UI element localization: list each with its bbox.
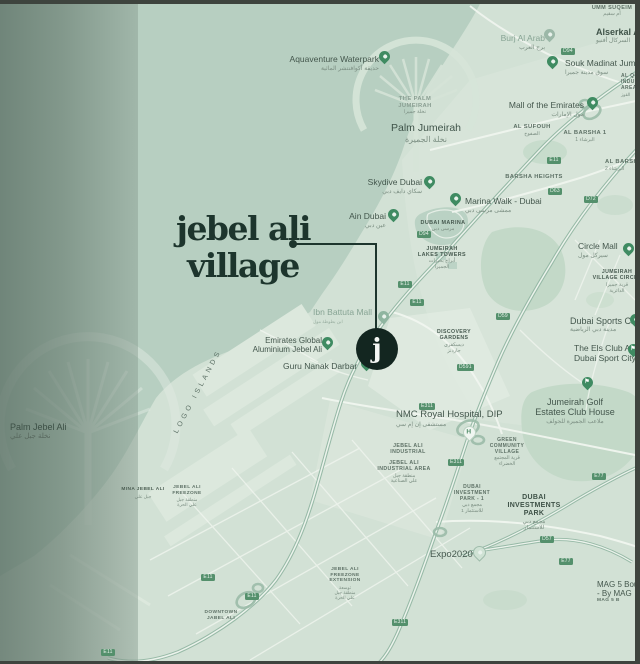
top-edge (0, 0, 640, 4)
road-badge: D94 (417, 231, 431, 238)
road-badge: E11 (245, 593, 259, 600)
label-dubai-investment-park-1: DUBAI INVESTMENT PARK - 1مجمع دبي للاستث… (448, 485, 496, 514)
label-jumeirah-lakes-towers: JUMEIRAH LAKES TOWERSأبراج بحيرات الجمير… (410, 246, 474, 271)
map-page: Aquaventure Waterparkحديقة أكوافنتشر الم… (0, 0, 640, 664)
label-guru-nanak-darbar: Guru Nanak Darbar (283, 362, 365, 372)
label-al-barsha-1: AL BARSHA 1البرشاء 1 (558, 130, 612, 143)
road-badge: E311 (448, 459, 464, 466)
project-title-line2: village (153, 247, 333, 284)
label-palm-jumeirah: Palm Jumeirahنخلة الجميرة (378, 122, 474, 144)
label-jebel-ali-industrial: JEBEL ALI INDUSTRIAL (378, 444, 438, 456)
road-badge: D72 (584, 196, 598, 203)
leader-line-vertical (375, 244, 377, 330)
road-badge: E11 (547, 157, 561, 164)
label-mall-of-the-emirates: Mall of the Emiratesمول الإمارات (508, 101, 584, 119)
label-mina-jebel-ali: MINA JEBEL ALIجبل علي (116, 487, 170, 499)
label-mag5-boulevard: MAG 5 Boulevard - By MAGMAG 5 B (597, 580, 640, 604)
label-jebel-ali-industrial-area: JEBEL ALI INDUSTRIAL AREAمنطقة جبل علي ا… (366, 461, 442, 485)
road-badge: E77 (592, 473, 606, 480)
label-marina-walk: Marina Walk - Dubaiممشى مرسى دبي (465, 197, 563, 215)
right-edge (635, 0, 640, 664)
label-jumeirah-golf-estates: Jumeirah Golf Estates Club Houseملاعب ال… (520, 397, 630, 426)
road-badge: D59 (496, 313, 510, 320)
road-badge: E77 (559, 558, 573, 565)
label-emirates-global-aluminium: Emirates Global Aluminium Jebel Ali (240, 336, 322, 354)
project-title: jebel ali village (153, 210, 333, 284)
label-ibn-battuta-mall: Ibn Battuta Mallابن بطوطة مول (313, 308, 383, 324)
label-skydive-dubai: Skydive Dubaiسكاي دايف دبي (358, 178, 422, 196)
road-badge: D57 (540, 536, 554, 543)
road-badge: D94 (561, 48, 575, 55)
label-al-sufouh: AL SUFOUHالصفوح (506, 124, 558, 137)
road-badge: D63 (548, 188, 562, 195)
road-badge: E311 (419, 403, 435, 410)
page-fold-band (0, 0, 138, 664)
label-jebel-ali-freezone: JEBEL ALI FREEZONEمنطقة جبل علي الحرة (164, 485, 210, 507)
road-badge: E11 (201, 574, 215, 581)
label-nmc-royal-hospital: NMC Royal Hospital, DIPمستشفى إن إم سي (396, 410, 506, 429)
jebel-ali-village-marker[interactable]: j (356, 328, 398, 370)
road-badge: E11 (398, 281, 412, 288)
label-jumeirah-village-circle: JUMEIRAH VILLAGE CIRCLEقرية جميرا الدائر… (590, 270, 640, 294)
label-ain-dubai: Ain Dubaiعين دبي (334, 212, 386, 230)
road-badge: E11 (101, 649, 115, 656)
road-badge: E11 (410, 299, 424, 306)
label-green-community-village: GREEN COMMUNITY VILLAGEقرية المجتمع الخض… (482, 438, 532, 467)
road-badge: E311 (392, 619, 408, 626)
label-jebel-ali-freezone-extension: JEBEL ALI FREEZONE EXTENSIONتوسعة منطقة … (320, 567, 370, 600)
label-palm-jebel-ali: Palm Jebel Aliنخلة جبل علي (10, 422, 90, 441)
label-umm-suqeim: UMM SUQEIMأم سقيم (586, 5, 638, 18)
project-title-line1: jebel ali (153, 210, 333, 247)
leader-line-horizontal (293, 243, 377, 245)
label-discovery-gardens: DISCOVERY GARDENSديسكفري جاردنز (426, 330, 482, 354)
label-barsha-heights: BARSHA HEIGHTS (503, 174, 565, 181)
label-alserkal-avenue: Alserkal Avenueالسركال أفنيو (596, 27, 640, 45)
road-badge: D591 (457, 364, 474, 371)
label-aquaventure-waterpark: Aquaventure Waterparkحديقة أكوافنتشر الم… (265, 55, 379, 73)
label-dubai-investments-park: DUBAI INVESTMENTS PARKمجمع دبي للاستثمار (496, 494, 572, 532)
label-circle-mall: Circle Mallسيركل مول (578, 242, 630, 260)
label-downtown-jebel-ali: DOWNTOWN JABEL ALI (194, 610, 248, 621)
label-burj-al-arab: Burj Al Arabبرج العرب (493, 34, 545, 52)
label-the-palm-jumeirah: THE PALM JUMEIRAHنخلة جميرا (385, 96, 445, 116)
